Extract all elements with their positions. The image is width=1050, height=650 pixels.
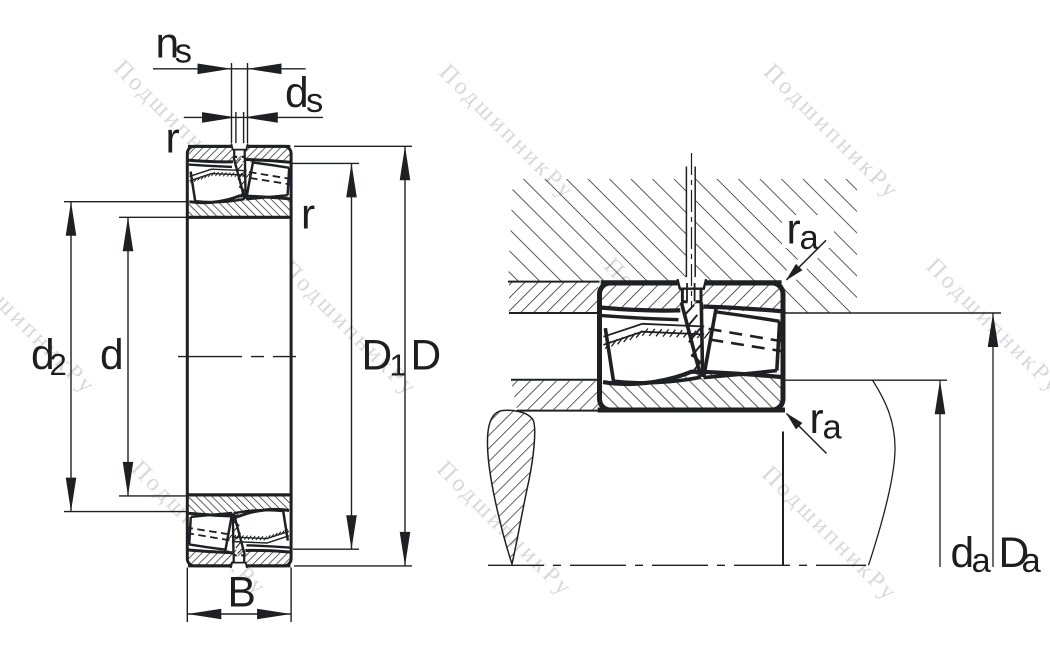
svg-text:B: B xyxy=(228,570,256,617)
svg-text:r: r xyxy=(301,192,315,239)
svg-text:a: a xyxy=(972,542,992,580)
svg-text:a: a xyxy=(800,219,820,257)
svg-text:1: 1 xyxy=(390,348,407,383)
svg-text:a: a xyxy=(823,409,843,447)
svg-text:r: r xyxy=(166,116,180,163)
svg-text:d: d xyxy=(100,332,124,379)
svg-text:D: D xyxy=(411,333,442,380)
svg-text:s: s xyxy=(306,82,323,120)
svg-text:2: 2 xyxy=(50,347,67,382)
svg-text:a: a xyxy=(1022,542,1042,580)
svg-text:D: D xyxy=(362,333,393,380)
svg-text:s: s xyxy=(175,33,192,71)
